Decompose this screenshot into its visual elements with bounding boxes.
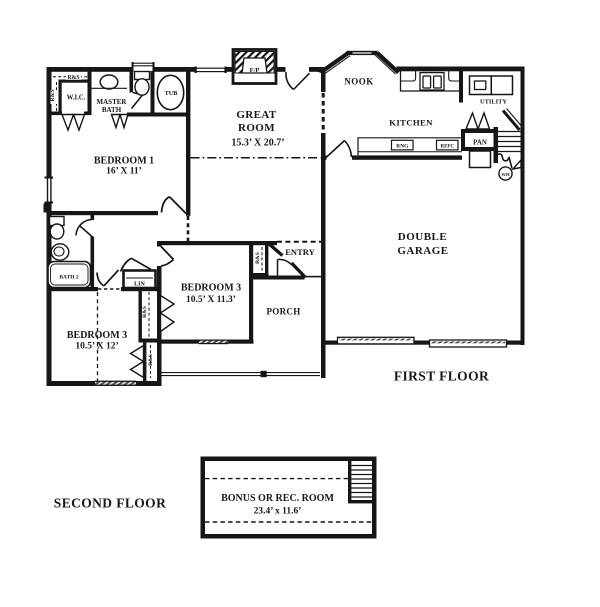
svg-text:BEDROOM 1: BEDROOM 1 bbox=[94, 156, 154, 167]
svg-text:DOUBLE: DOUBLE bbox=[398, 231, 447, 243]
svg-text:R&S: R&S bbox=[255, 252, 261, 264]
svg-text:ENTRY: ENTRY bbox=[285, 247, 314, 257]
svg-text:SECOND FLOOR: SECOND FLOOR bbox=[54, 496, 166, 511]
svg-text:WH: WH bbox=[501, 172, 510, 177]
svg-text:ROOM: ROOM bbox=[238, 122, 275, 134]
svg-text:BONUS OR REC. ROOM: BONUS OR REC. ROOM bbox=[221, 493, 334, 504]
svg-text:GREAT: GREAT bbox=[236, 109, 277, 121]
svg-text:PAN: PAN bbox=[473, 139, 487, 147]
svg-text:16’ X 11’: 16’ X 11’ bbox=[106, 167, 142, 177]
svg-text:W.I.C.: W.I.C. bbox=[67, 95, 86, 102]
svg-text:LIN: LIN bbox=[134, 282, 145, 288]
svg-text:R&S: R&S bbox=[67, 75, 79, 81]
svg-text:KITCHEN: KITCHEN bbox=[389, 118, 433, 128]
svg-text:UTILITY: UTILITY bbox=[480, 99, 507, 106]
svg-text:FIRST FLOOR: FIRST FLOOR bbox=[394, 369, 489, 384]
svg-text:REFC: REFC bbox=[440, 145, 454, 150]
svg-text:23.4’ x 11.6’: 23.4’ x 11.6’ bbox=[254, 507, 302, 517]
svg-text:GARAGE: GARAGE bbox=[397, 245, 448, 257]
svg-text:15.3’ X 20.7’: 15.3’ X 20.7’ bbox=[231, 138, 284, 149]
svg-text:BATH: BATH bbox=[102, 106, 122, 114]
svg-text:R&S: R&S bbox=[148, 354, 154, 366]
svg-text:MASTER: MASTER bbox=[97, 98, 128, 106]
svg-text:10.5’ X 11.3’: 10.5’ X 11.3’ bbox=[186, 295, 236, 305]
svg-text:TUB: TUB bbox=[165, 90, 178, 97]
svg-text:F/P: F/P bbox=[250, 67, 260, 74]
svg-text:BEDROOM 3: BEDROOM 3 bbox=[181, 283, 241, 294]
svg-text:PORCH: PORCH bbox=[267, 307, 301, 317]
svg-text:BATH 2: BATH 2 bbox=[59, 275, 79, 281]
svg-text:R&S: R&S bbox=[50, 89, 56, 101]
svg-text:RNG: RNG bbox=[396, 144, 409, 150]
svg-text:R&S: R&S bbox=[142, 306, 148, 318]
svg-text:NOOK: NOOK bbox=[344, 77, 374, 87]
